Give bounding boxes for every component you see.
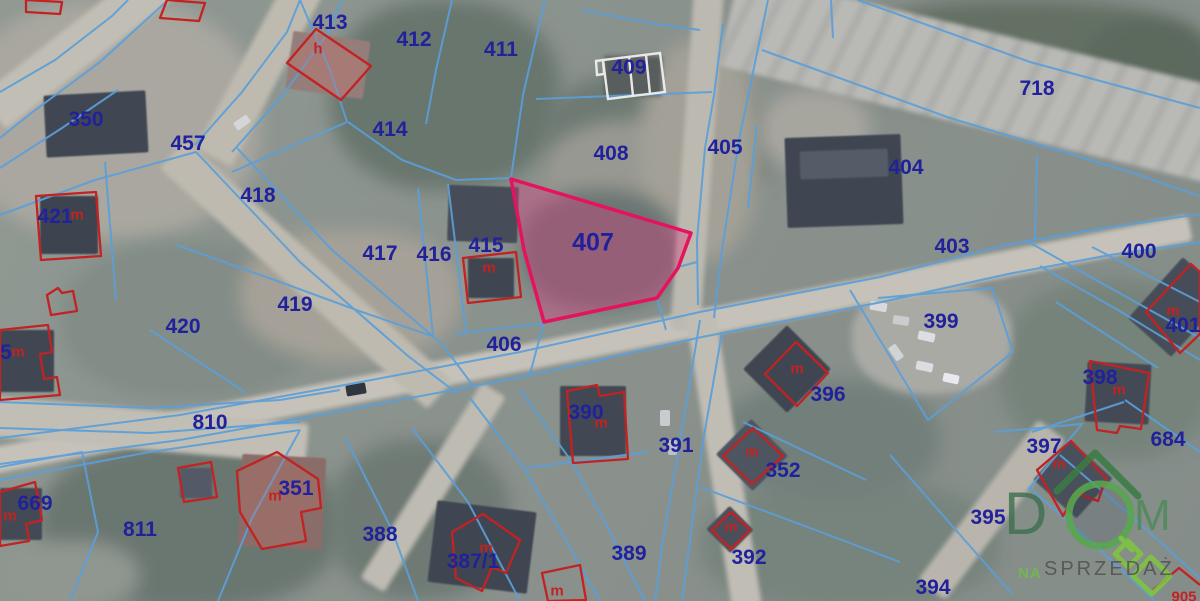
building-label-m: m — [790, 361, 803, 378]
parcel-label-350: 350 — [68, 108, 103, 132]
parcel-label-5: 5 — [0, 341, 12, 365]
parcel-label-408: 408 — [593, 142, 628, 166]
building-label-m: m — [11, 344, 24, 361]
parcel-label-413: 413 — [312, 11, 347, 35]
parcel-label-406: 406 — [486, 333, 521, 357]
parcel-label-412: 412 — [396, 28, 431, 52]
building-label-m: m — [745, 444, 758, 461]
parcel-label-391: 391 — [658, 434, 693, 458]
building-label-m: m — [1112, 382, 1125, 399]
parcel-label-399: 399 — [923, 310, 958, 334]
parcel-label-405: 405 — [707, 136, 742, 160]
building-label-m: m — [1052, 456, 1065, 473]
building-label-m: m — [550, 583, 563, 600]
building-label-m: m — [479, 540, 492, 557]
label-layer: 4134124114097183504144574054084044184214… — [0, 0, 1200, 601]
parcel-label-418: 418 — [240, 184, 275, 208]
parcel-label-419: 419 — [277, 293, 312, 317]
parcel-label-352: 352 — [765, 459, 800, 483]
parcel-label-417: 417 — [362, 242, 397, 266]
parcel-label-810: 810 — [192, 411, 227, 435]
parcel-label-392: 392 — [731, 546, 766, 570]
building-label-m: m — [268, 488, 281, 505]
building-label-905: 905 — [1171, 589, 1196, 601]
building-label-h: h — [313, 41, 322, 58]
building-label-m: m — [482, 260, 495, 277]
parcel-label-388: 388 — [362, 523, 397, 547]
parcel-label-407: 407 — [572, 229, 614, 258]
parcel-label-351: 351 — [278, 477, 313, 501]
parcel-label-718: 718 — [1019, 77, 1054, 101]
building-label-m: m — [3, 508, 16, 525]
parcel-label-400: 400 — [1121, 240, 1156, 264]
cadastral-map: 4134124114097183504144574054084044184214… — [0, 0, 1200, 601]
parcel-label-411: 411 — [484, 38, 518, 62]
parcel-label-811: 811 — [123, 518, 157, 542]
parcel-label-457: 457 — [170, 132, 205, 156]
parcel-label-396: 396 — [810, 383, 845, 407]
parcel-label-669: 669 — [17, 492, 52, 516]
building-label-m: m — [1166, 303, 1179, 320]
building-label-m: m — [70, 207, 83, 224]
building-label-m: m — [594, 415, 607, 432]
parcel-label-684: 684 — [1150, 428, 1185, 452]
parcel-label-420: 420 — [165, 315, 200, 339]
parcel-label-409: 409 — [611, 56, 646, 80]
parcel-label-415: 415 — [468, 234, 503, 258]
building-label-m: m — [724, 519, 737, 536]
parcel-label-404: 404 — [888, 156, 923, 180]
parcel-label-403: 403 — [934, 235, 969, 259]
parcel-label-395: 395 — [970, 506, 1005, 530]
parcel-label-416: 416 — [416, 243, 451, 267]
parcel-label-389: 389 — [611, 542, 646, 566]
parcel-label-414: 414 — [372, 118, 407, 142]
parcel-label-394: 394 — [915, 576, 950, 600]
parcel-label-421: 421 — [37, 205, 72, 229]
